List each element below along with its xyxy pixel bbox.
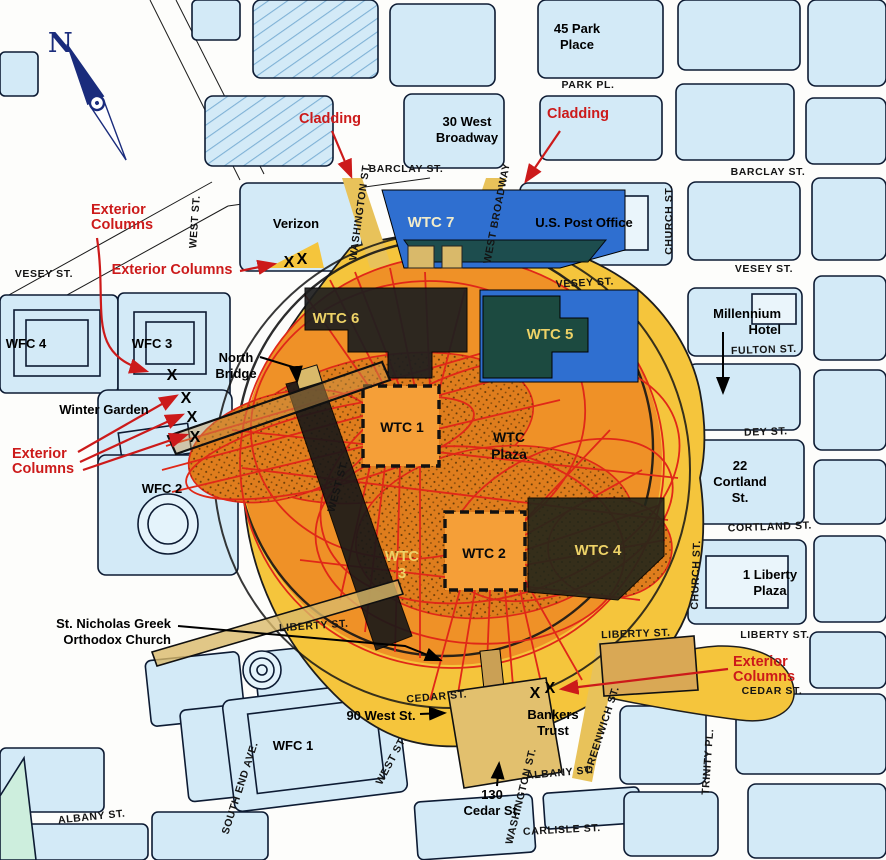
street-label: VESEY ST.: [735, 263, 793, 275]
street-label: DEY ST.: [744, 425, 788, 439]
street-label: LIBERTY ST.: [601, 627, 671, 641]
street-label: CHURCH ST.: [663, 185, 675, 255]
building-label: 130Cedar St.: [463, 787, 520, 818]
block: [152, 812, 268, 860]
90-west-pointer: [420, 713, 444, 714]
x-mark: X: [284, 254, 295, 271]
map-page: N PARK PL.BARCLAY ST.BARCLAY ST.VESEY ST…: [0, 0, 886, 860]
building-label: WFC 4: [6, 336, 47, 351]
liberty-plaza-footprint: [706, 556, 788, 608]
block: [624, 792, 718, 856]
wtc-label: WTC 5: [527, 326, 574, 343]
block-hatched: [253, 0, 378, 78]
x-mark: X: [297, 251, 308, 268]
street-label: BARCLAY ST.: [369, 163, 444, 175]
building-label: Winter Garden: [59, 402, 149, 417]
x-mark: X: [545, 680, 556, 697]
block: [814, 276, 886, 360]
street-label: WEST ST.: [187, 195, 203, 249]
block: [808, 0, 886, 86]
block: [192, 0, 240, 40]
block: [814, 536, 886, 622]
street-label: FULTON ST.: [731, 343, 797, 357]
street-label: VESEY ST.: [15, 268, 73, 280]
block: [814, 460, 886, 524]
building-label: U.S. Post Office: [535, 215, 633, 230]
wtc-label: WTCPlaza: [491, 429, 527, 462]
red-annotation-label: ExteriorColumns: [733, 654, 795, 685]
wtc-label: WTC 6: [313, 310, 360, 327]
wtc-label: WTC 1: [380, 419, 424, 435]
building-label: 30 WestBroadway: [436, 114, 499, 145]
compass-needle-south: [92, 102, 132, 163]
wtc-label: WTC 7: [408, 214, 455, 231]
wfc2-courtyard: [138, 494, 198, 554]
street-label: CEDAR ST.: [742, 685, 803, 697]
building-label: WFC 3: [132, 336, 172, 351]
building-label: NorthBridge: [215, 350, 256, 381]
block: [0, 52, 38, 96]
wtc-label: WTC 4: [575, 542, 622, 559]
building-label: 90 West St.: [346, 708, 415, 723]
block: [390, 4, 495, 86]
building-label: St. Nicholas GreekOrthodox Church: [56, 616, 172, 647]
block: [814, 370, 886, 450]
block: [678, 0, 800, 70]
street-label: BARCLAY ST.: [731, 166, 806, 178]
block: [688, 364, 800, 430]
block: [620, 706, 706, 784]
block: [812, 178, 886, 260]
red-annotation-label: Cladding: [299, 111, 361, 127]
red-annotation-label: Exterior Columns: [112, 262, 233, 278]
building-label: WFC 2: [142, 481, 182, 496]
fountain: [243, 651, 281, 689]
x-mark: X: [187, 409, 198, 426]
x-mark: X: [181, 390, 192, 407]
wtc7-lobby-bridge: [442, 246, 462, 268]
compass-rose: N: [48, 28, 134, 164]
wtc7-lobby-bridge: [408, 246, 434, 268]
street-label: CORTLAND ST.: [728, 520, 813, 535]
cladding-left-arrow: [332, 131, 351, 176]
x-mark: X: [530, 685, 541, 702]
block: [810, 632, 886, 688]
x-mark: X: [190, 429, 201, 446]
building-label: 45 ParkPlace: [554, 21, 601, 52]
street-label: CHURCH ST.: [689, 540, 703, 610]
block: [806, 98, 886, 164]
block: [688, 182, 800, 260]
x-mark: X: [167, 367, 178, 384]
street-label: LIBERTY ST.: [740, 629, 809, 641]
street-label: PARK PL.: [561, 79, 614, 91]
compass-north-label: N: [48, 28, 73, 59]
block-hatched: [205, 96, 333, 166]
building-label: WFC 1: [273, 738, 313, 753]
building-label: Verizon: [273, 216, 319, 231]
wtc-debris-map: N PARK PL.BARCLAY ST.BARCLAY ST.VESEY ST…: [0, 0, 886, 860]
red-annotation-label: Cladding: [547, 106, 609, 122]
block: [676, 84, 794, 160]
wtc-label: WTC 2: [462, 545, 506, 561]
block: [748, 784, 886, 858]
red-annotation-label: ExteriorColumns: [91, 202, 153, 233]
red-annotation-label: ExteriorColumns: [12, 446, 74, 477]
block-45-park-place: [538, 0, 663, 78]
